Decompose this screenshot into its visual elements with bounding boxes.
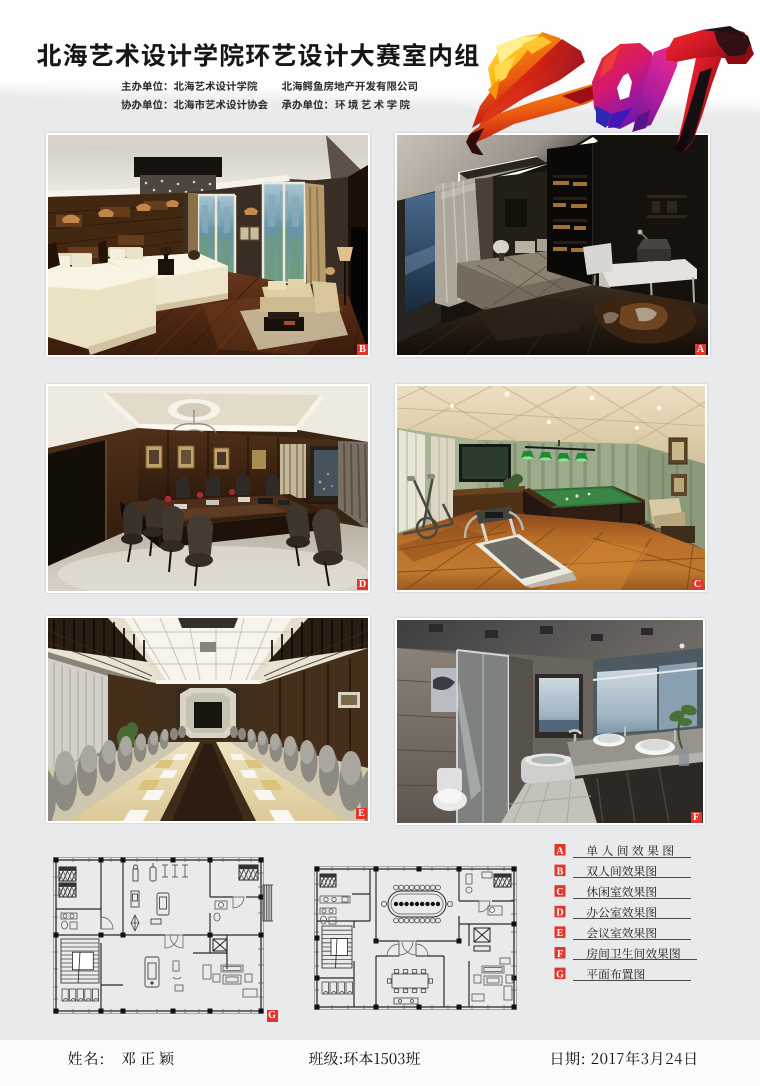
svg-text:E: E [557,928,564,939]
svg-text:D: D [556,908,563,919]
svg-text:A: A [556,846,564,857]
svg-text:G: G [556,969,564,980]
svg-text:F: F [557,949,563,960]
svg-text:B: B [557,866,564,877]
svg-text:C: C [556,887,563,898]
